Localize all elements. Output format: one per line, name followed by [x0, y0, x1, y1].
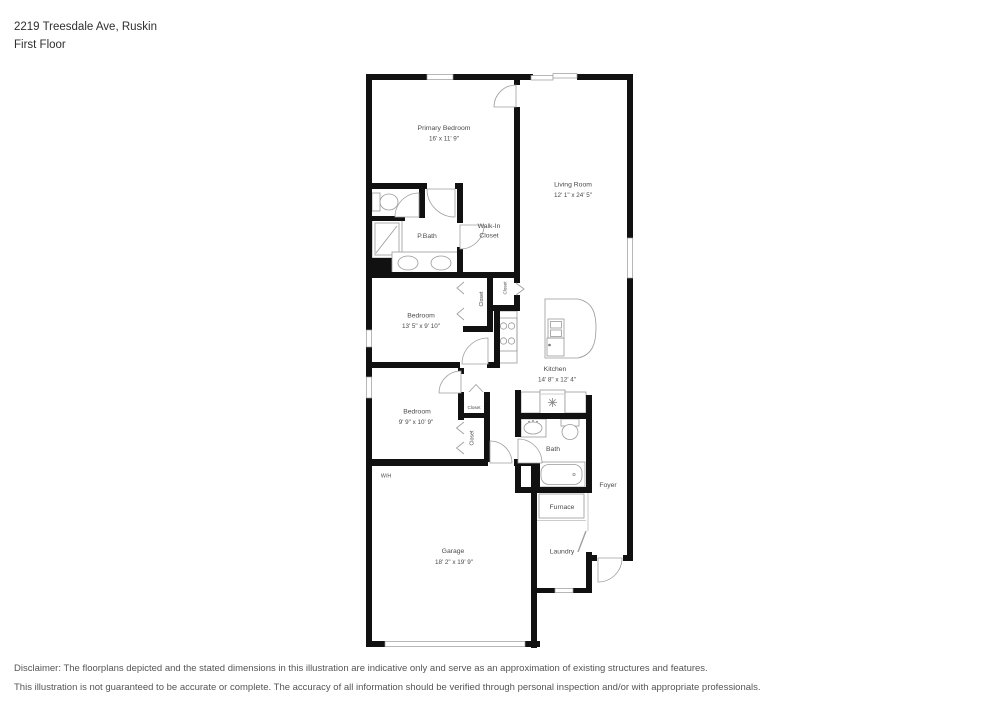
- wall: [366, 74, 372, 330]
- room-label-foyer: Foyer: [599, 482, 617, 489]
- toilet-icon: [561, 419, 579, 440]
- wall: [494, 311, 500, 368]
- walls: [366, 74, 633, 648]
- room-label-living-room: Living Room: [554, 182, 592, 189]
- wall: [366, 398, 372, 462]
- wall: [487, 305, 520, 311]
- sink-icon: [521, 419, 546, 437]
- laundry-door-leaf: [578, 531, 586, 552]
- room-living-room: Living Room 12' 1" x 24' 5": [554, 182, 592, 200]
- label-water-heater: W/H: [381, 474, 391, 480]
- room-label-walk-in-2: Closet: [479, 233, 498, 240]
- window: [555, 589, 573, 593]
- toilet-icon: [372, 193, 398, 211]
- closet-door-chevron: [457, 282, 464, 294]
- door-arc: [427, 189, 455, 217]
- door-arc: [395, 193, 419, 217]
- floorplan-canvas: Primary Bedroom 16' x 11' 9" Living Room…: [0, 0, 1000, 707]
- room-dims-kitchen: 14' 8" x 12' 4": [538, 377, 576, 384]
- wall: [573, 588, 592, 593]
- room-dims-garage: 18' 2" x 19' 9": [435, 559, 473, 566]
- door-arc: [518, 439, 542, 463]
- room-kitchen: Kitchen 14' 8" x 12' 4": [538, 366, 576, 384]
- wall: [366, 183, 427, 189]
- room-primary-bedroom: Primary Bedroom 16' x 11' 9": [418, 125, 471, 143]
- door-arc: [439, 371, 461, 393]
- window: [553, 74, 577, 79]
- wall: [577, 74, 633, 80]
- closet-label-bedroom3: Closet: [470, 430, 476, 446]
- window: [628, 238, 633, 278]
- wall: [463, 326, 493, 332]
- wall: [366, 462, 372, 647]
- wall: [484, 392, 490, 462]
- room-label-walk-in: Walk-In: [478, 223, 501, 230]
- wall: [453, 74, 533, 80]
- wall: [627, 278, 633, 561]
- wall: [627, 74, 633, 238]
- wall: [514, 107, 520, 278]
- door-arc: [490, 441, 512, 463]
- wall: [515, 413, 592, 419]
- closet-label-pantry: Closet: [503, 281, 508, 295]
- room-label-p-bath: P.Bath: [417, 233, 437, 240]
- refrigerator-icon: [540, 390, 565, 414]
- disclaimer-line-2: This illustration is not guaranteed to b…: [14, 679, 761, 698]
- room-garage: Garage 18' 2" x 19' 9": [435, 548, 473, 566]
- room-dims-living-room: 12' 1" x 24' 5": [554, 192, 592, 199]
- room-label-bedroom-3: Bedroom: [403, 409, 431, 416]
- room-bedroom-3: Bedroom 9' 9" x 10' 9": [399, 409, 434, 427]
- wall: [514, 74, 520, 85]
- room-dims-bedroom-3: 9' 9" x 10' 9": [399, 419, 434, 426]
- wall: [366, 459, 488, 466]
- room-bedroom-2: Bedroom 13' 5" x 9' 10": [402, 313, 440, 331]
- wall: [531, 588, 555, 593]
- wall: [586, 395, 592, 493]
- bathtub-icon: [538, 462, 585, 487]
- wall: [531, 459, 537, 648]
- wall: [366, 641, 385, 647]
- window: [427, 75, 453, 80]
- garage-door: [385, 642, 525, 647]
- wall: [366, 74, 427, 80]
- room-label-primary-bedroom: Primary Bedroom: [418, 125, 471, 132]
- door-arc: [462, 338, 488, 364]
- window: [367, 330, 372, 347]
- room-dims-bedroom-2: 13' 5" x 9' 10": [402, 323, 440, 330]
- wall: [514, 278, 520, 283]
- counter: [565, 392, 586, 413]
- closet-door-chevron: [516, 283, 524, 295]
- wall: [419, 189, 425, 218]
- wall: [366, 272, 517, 278]
- disclaimer-line-1: Disclaimer: The floorplans depicted and …: [14, 660, 761, 679]
- wall: [515, 487, 592, 493]
- closet-door-chevron: [457, 422, 465, 434]
- wall: [487, 362, 500, 368]
- closet-door-chevron: [457, 442, 465, 454]
- closet-door-chevron: [469, 385, 483, 393]
- window: [367, 377, 372, 398]
- kitchen-island-icon: [545, 299, 596, 358]
- wall: [588, 555, 597, 561]
- front-door-arc: [598, 558, 622, 582]
- room-label-garage: Garage: [442, 548, 465, 555]
- closet-door-chevron: [457, 308, 464, 320]
- counter: [521, 392, 540, 413]
- room-label-bath: Bath: [546, 446, 560, 453]
- disclaimer: Disclaimer: The floorplans depicted and …: [14, 660, 761, 697]
- room-label-bedroom-2: Bedroom: [407, 313, 435, 320]
- wall: [623, 555, 633, 561]
- room-label-laundry: Laundry: [550, 549, 575, 556]
- wall: [366, 362, 460, 368]
- closet-label-bedroom2: Closet: [479, 291, 485, 307]
- room-label-furnace: Furnace: [550, 504, 575, 511]
- wall: [457, 183, 463, 223]
- window: [531, 76, 553, 81]
- room-label-kitchen: Kitchen: [544, 366, 567, 373]
- wall: [487, 272, 493, 332]
- door-arc: [494, 85, 516, 107]
- room-dims-primary-bedroom: 16' x 11' 9": [429, 136, 459, 143]
- closet-label-hall: Closet: [467, 405, 481, 410]
- snowflake-icon: [548, 398, 557, 407]
